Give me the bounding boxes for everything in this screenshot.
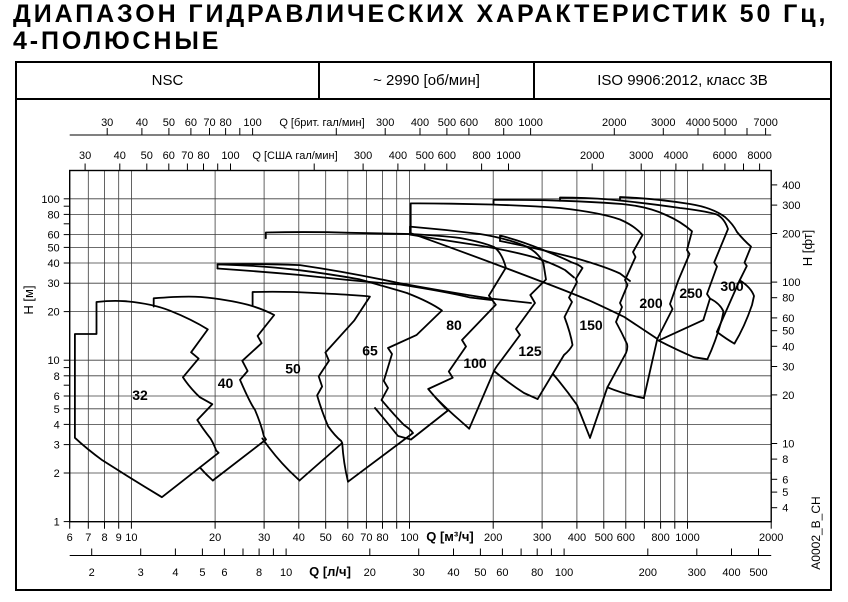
svg-text:50: 50	[47, 242, 59, 254]
svg-text:Q [м³/ч]: Q [м³/ч]	[426, 529, 474, 544]
svg-text:6: 6	[782, 474, 788, 486]
svg-text:H [м]: H [м]	[21, 285, 36, 314]
svg-text:8: 8	[101, 532, 107, 544]
svg-text:80: 80	[376, 532, 388, 544]
svg-text:10: 10	[782, 439, 794, 451]
svg-text:100: 100	[221, 150, 239, 162]
svg-text:70: 70	[203, 117, 215, 129]
svg-text:100: 100	[243, 117, 261, 129]
svg-text:50: 50	[782, 326, 794, 338]
svg-text:Q [брит. гал/мин]: Q [брит. гал/мин]	[279, 117, 364, 129]
svg-text:60: 60	[342, 532, 354, 544]
svg-text:40: 40	[218, 375, 234, 391]
svg-text:800: 800	[472, 150, 490, 162]
svg-text:20: 20	[364, 567, 376, 579]
svg-text:60: 60	[185, 117, 197, 129]
svg-text:80: 80	[531, 567, 543, 579]
svg-text:400: 400	[389, 150, 407, 162]
svg-text:3000: 3000	[651, 117, 675, 129]
svg-text:9: 9	[116, 532, 122, 544]
svg-text:600: 600	[460, 117, 478, 129]
svg-text:800: 800	[495, 117, 513, 129]
svg-text:20: 20	[209, 532, 221, 544]
svg-text:300: 300	[782, 200, 800, 212]
svg-text:1000: 1000	[518, 117, 542, 129]
svg-text:80: 80	[782, 293, 794, 305]
svg-text:400: 400	[411, 117, 429, 129]
svg-text:4: 4	[54, 419, 60, 431]
svg-text:80: 80	[47, 209, 59, 221]
svg-text:400: 400	[722, 567, 740, 579]
svg-text:4: 4	[782, 503, 788, 515]
svg-text:8000: 8000	[747, 150, 771, 162]
svg-text:32: 32	[132, 387, 148, 403]
svg-text:30: 30	[101, 117, 113, 129]
svg-text:300: 300	[376, 117, 394, 129]
svg-text:100: 100	[782, 277, 800, 289]
svg-text:Q [США гал/мин]: Q [США гал/мин]	[252, 150, 337, 162]
svg-text:50: 50	[474, 567, 486, 579]
svg-text:70: 70	[360, 532, 372, 544]
svg-text:200: 200	[484, 532, 502, 544]
svg-text:500: 500	[438, 117, 456, 129]
svg-text:8: 8	[54, 371, 60, 383]
svg-text:100: 100	[555, 567, 573, 579]
svg-text:60: 60	[496, 567, 508, 579]
svg-text:1000: 1000	[675, 532, 699, 544]
svg-text:60: 60	[782, 313, 794, 325]
svg-text:1: 1	[54, 517, 60, 529]
svg-text:5000: 5000	[713, 117, 737, 129]
svg-text:80: 80	[197, 150, 209, 162]
svg-text:2: 2	[54, 468, 60, 480]
svg-text:3000: 3000	[629, 150, 653, 162]
svg-text:300: 300	[688, 567, 706, 579]
svg-text:500: 500	[749, 567, 767, 579]
svg-text:100: 100	[400, 532, 418, 544]
svg-text:2000: 2000	[602, 117, 626, 129]
svg-text:40: 40	[136, 117, 148, 129]
svg-text:10: 10	[280, 567, 292, 579]
svg-text:250: 250	[679, 285, 703, 301]
svg-text:20: 20	[47, 307, 59, 319]
svg-text:200: 200	[782, 229, 800, 241]
svg-text:6000: 6000	[713, 150, 737, 162]
svg-text:300: 300	[354, 150, 372, 162]
svg-text:10: 10	[47, 355, 59, 367]
svg-text:5: 5	[54, 404, 60, 416]
svg-text:600: 600	[438, 150, 456, 162]
svg-text:30: 30	[47, 278, 59, 290]
svg-text:50: 50	[285, 361, 301, 377]
svg-text:6: 6	[54, 391, 60, 403]
svg-text:50: 50	[163, 117, 175, 129]
svg-text:200: 200	[639, 567, 657, 579]
svg-text:40: 40	[47, 258, 59, 270]
svg-text:400: 400	[782, 180, 800, 192]
svg-text:50: 50	[320, 532, 332, 544]
svg-text:5: 5	[199, 567, 205, 579]
svg-text:80: 80	[219, 117, 231, 129]
svg-text:20: 20	[782, 390, 794, 402]
svg-text:500: 500	[595, 532, 613, 544]
svg-text:8: 8	[256, 567, 262, 579]
svg-text:40: 40	[782, 341, 794, 353]
svg-text:125: 125	[518, 343, 542, 359]
svg-text:5: 5	[782, 487, 788, 499]
svg-text:A0002_B_CH: A0002_B_CH	[809, 496, 823, 569]
svg-text:30: 30	[258, 532, 270, 544]
svg-text:60: 60	[163, 150, 175, 162]
svg-text:100: 100	[463, 355, 487, 371]
svg-text:150: 150	[579, 317, 603, 333]
svg-text:800: 800	[651, 532, 669, 544]
svg-text:4: 4	[172, 567, 178, 579]
svg-text:40: 40	[293, 532, 305, 544]
svg-text:30: 30	[79, 150, 91, 162]
svg-text:40: 40	[447, 567, 459, 579]
svg-text:H [фт]: H [фт]	[800, 230, 815, 267]
svg-text:300: 300	[533, 532, 551, 544]
svg-text:1000: 1000	[496, 150, 520, 162]
svg-text:40: 40	[114, 150, 126, 162]
svg-text:4000: 4000	[686, 117, 710, 129]
svg-text:Q [л/ч]: Q [л/ч]	[309, 564, 351, 579]
svg-text:30: 30	[413, 567, 425, 579]
svg-text:10: 10	[125, 532, 137, 544]
svg-text:70: 70	[181, 150, 193, 162]
svg-text:500: 500	[416, 150, 434, 162]
svg-text:200: 200	[639, 295, 663, 311]
svg-text:600: 600	[617, 532, 635, 544]
svg-text:2: 2	[89, 567, 95, 579]
svg-text:2000: 2000	[759, 532, 783, 544]
svg-text:300: 300	[720, 278, 744, 294]
svg-text:50: 50	[141, 150, 153, 162]
svg-text:6: 6	[67, 532, 73, 544]
svg-text:3: 3	[138, 567, 144, 579]
svg-text:2000: 2000	[580, 150, 604, 162]
svg-text:65: 65	[362, 343, 378, 359]
svg-text:100: 100	[41, 194, 59, 206]
svg-text:60: 60	[47, 230, 59, 242]
svg-text:7000: 7000	[753, 117, 777, 129]
svg-text:7: 7	[85, 532, 91, 544]
svg-text:30: 30	[782, 362, 794, 374]
svg-text:4000: 4000	[664, 150, 688, 162]
svg-text:400: 400	[568, 532, 586, 544]
svg-text:80: 80	[446, 317, 462, 333]
svg-text:3: 3	[54, 440, 60, 452]
svg-text:6: 6	[221, 567, 227, 579]
svg-text:8: 8	[782, 454, 788, 466]
